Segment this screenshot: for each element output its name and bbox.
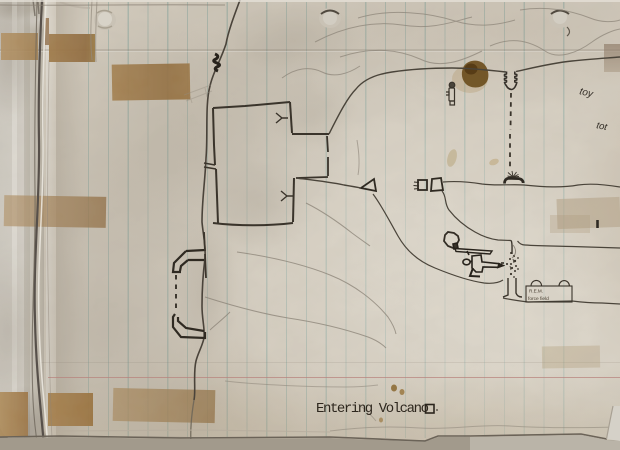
svg-text:R.E.M.: R.E.M. <box>529 289 543 294</box>
svg-text:Entering Volcano: Entering Volcano <box>316 401 429 417</box>
svg-text:force field: force field <box>528 296 549 302</box>
svg-text:toy: toy <box>578 86 595 100</box>
svg-text:tot: tot <box>595 120 608 133</box>
